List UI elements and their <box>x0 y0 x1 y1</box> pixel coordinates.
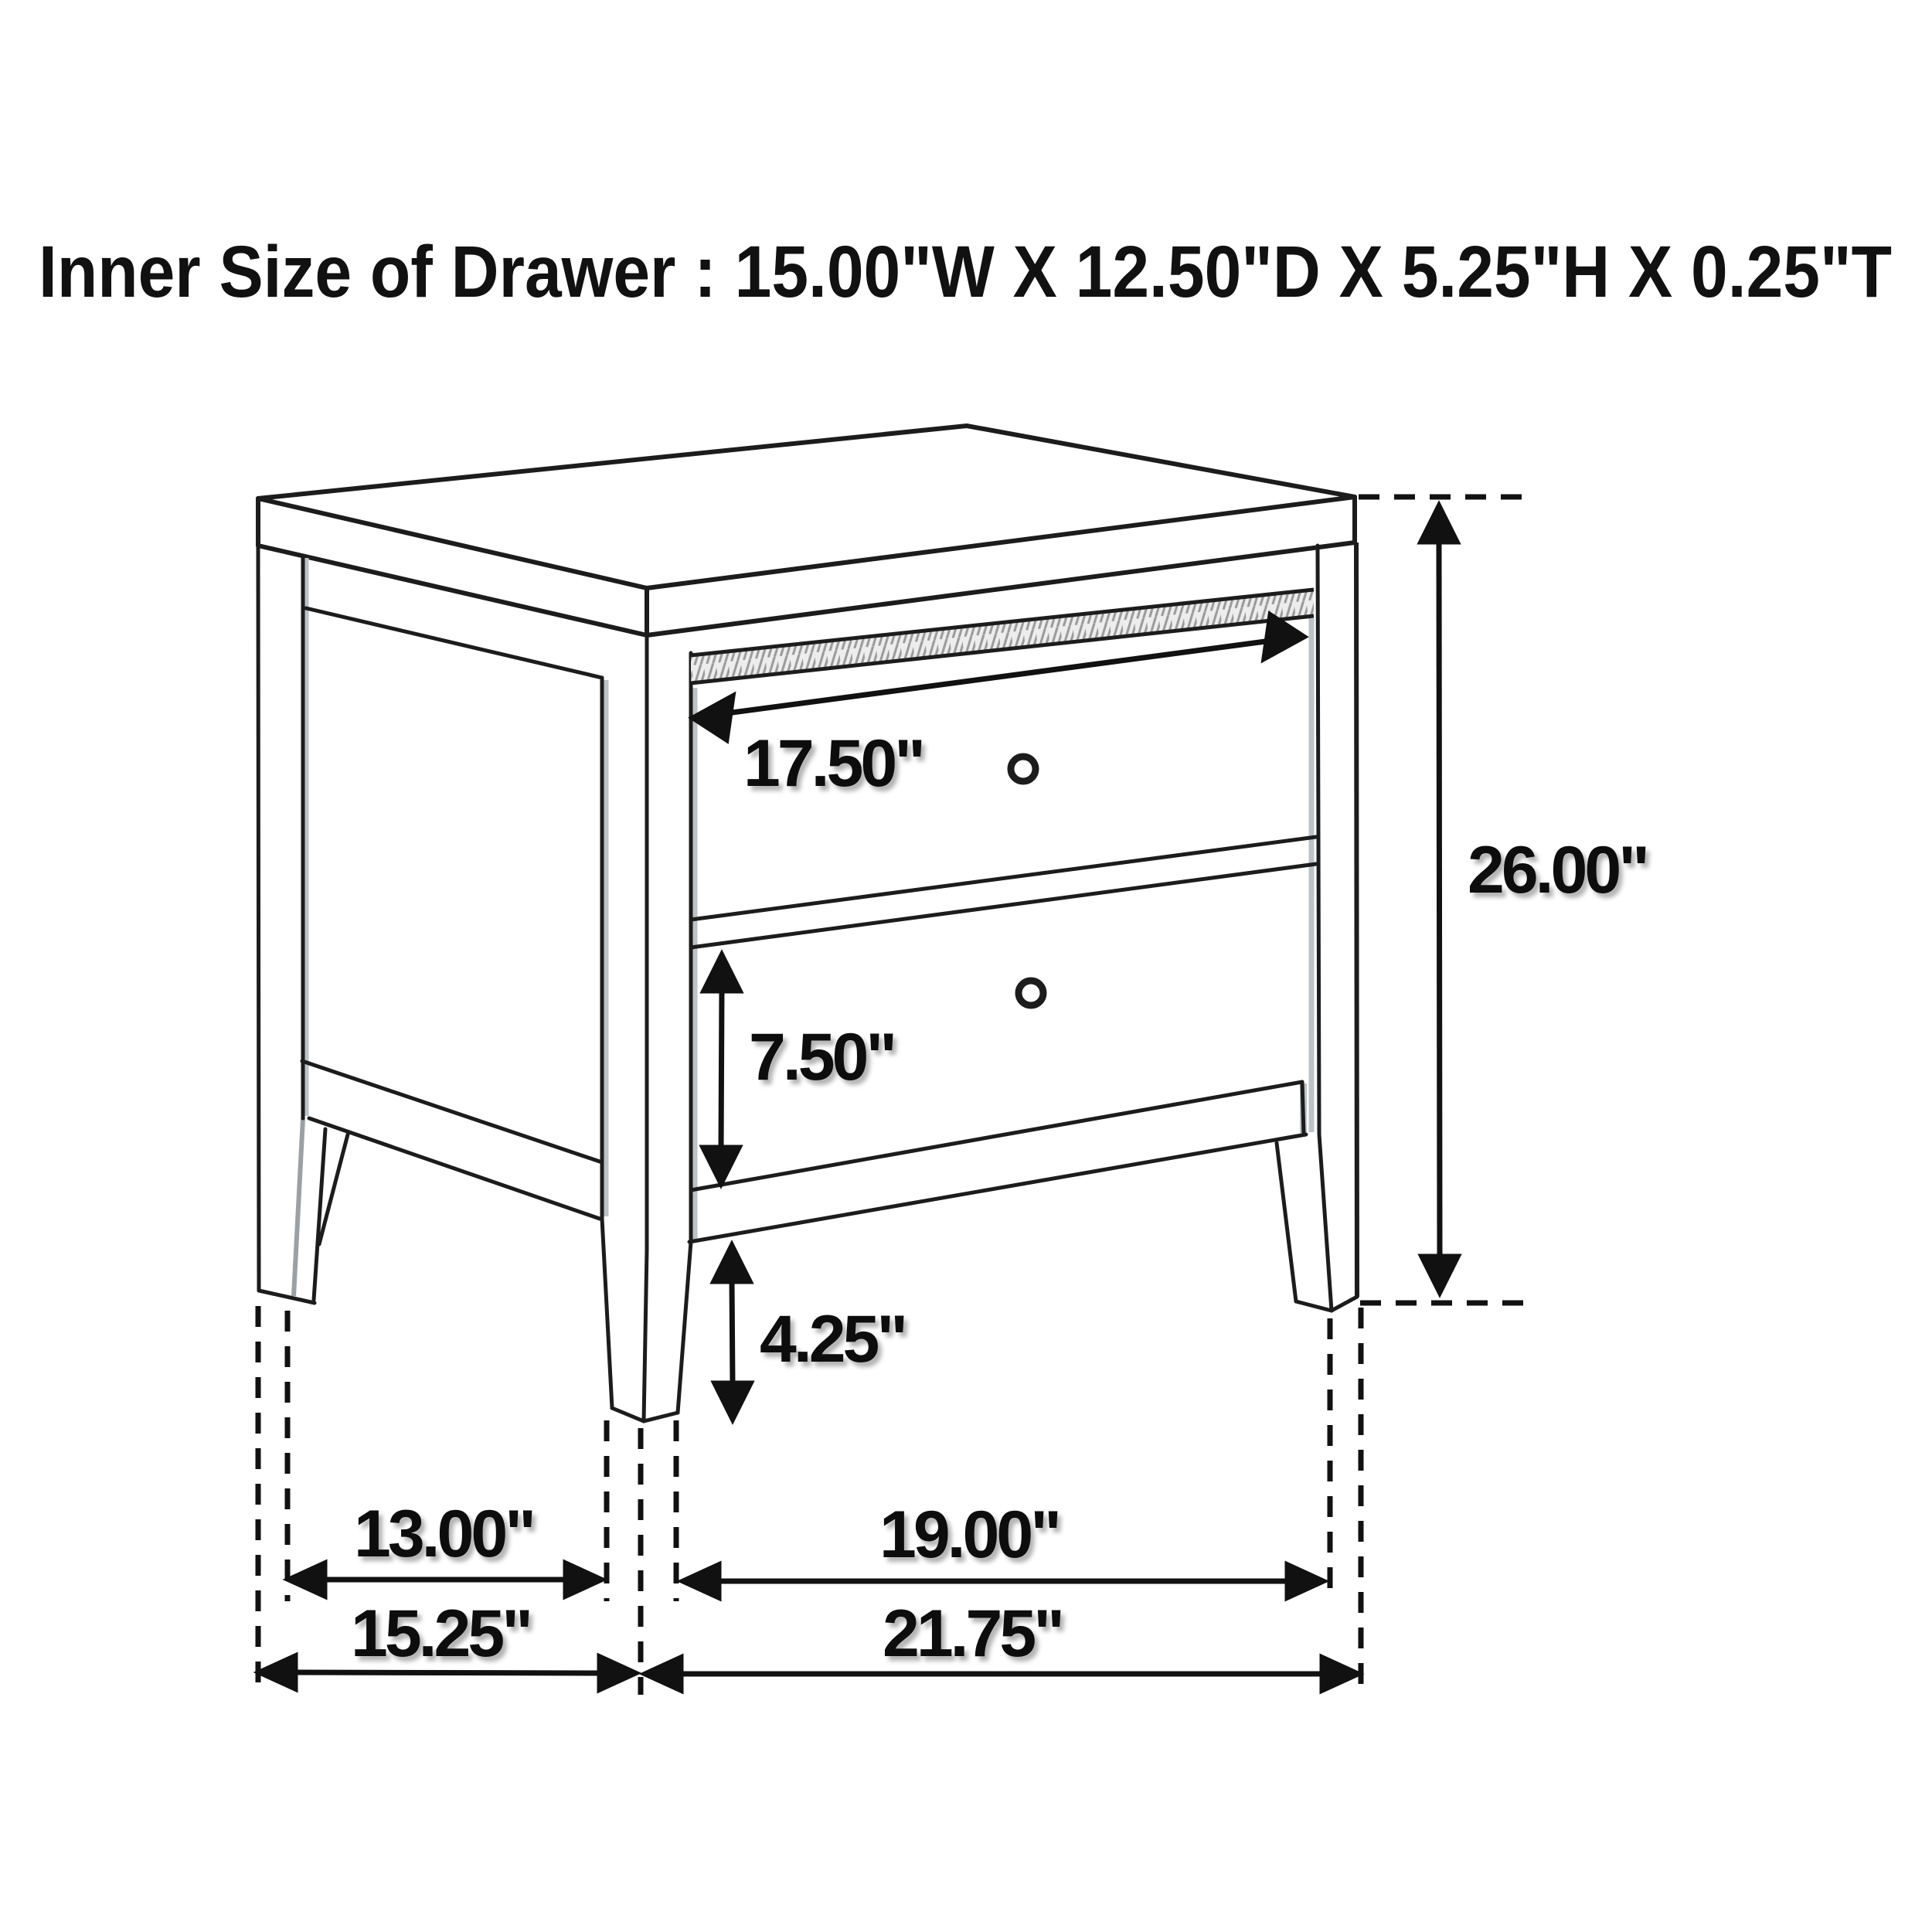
svg-text:17.50": 17.50" <box>743 726 923 801</box>
svg-text:7.50": 7.50" <box>749 1020 894 1094</box>
svg-text:Inner Size of Drawer : 15.00"W: Inner Size of Drawer : 15.00"W X 12.50"D… <box>39 231 1892 313</box>
svg-text:26.00": 26.00" <box>1468 833 1647 907</box>
svg-text:13.00": 13.00" <box>354 1497 533 1571</box>
svg-text:21.75": 21.75" <box>883 1597 1062 1671</box>
svg-text:4.25": 4.25" <box>760 1302 905 1376</box>
svg-text:15.25": 15.25" <box>351 1597 530 1671</box>
svg-text:19.00": 19.00" <box>879 1498 1059 1572</box>
